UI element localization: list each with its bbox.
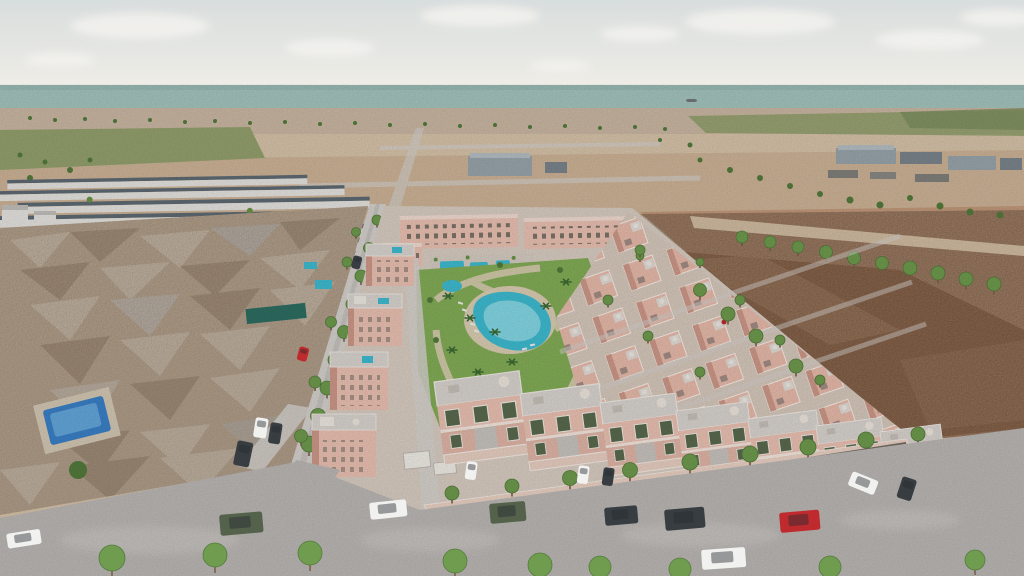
vehicle-dark [664,507,706,531]
vehicle-green [489,501,527,524]
tree [819,556,841,576]
sea [0,84,1024,112]
tree [669,558,691,576]
vehicle-white [701,547,746,570]
cargo-ship [686,99,697,102]
tree [589,556,611,576]
vehicle-dark [604,505,638,526]
aerial-render-viewport [0,0,1024,576]
scene-canvas [0,0,1024,576]
vehicle-red [779,510,821,533]
tree [528,553,552,576]
vehicle-green [219,511,264,536]
